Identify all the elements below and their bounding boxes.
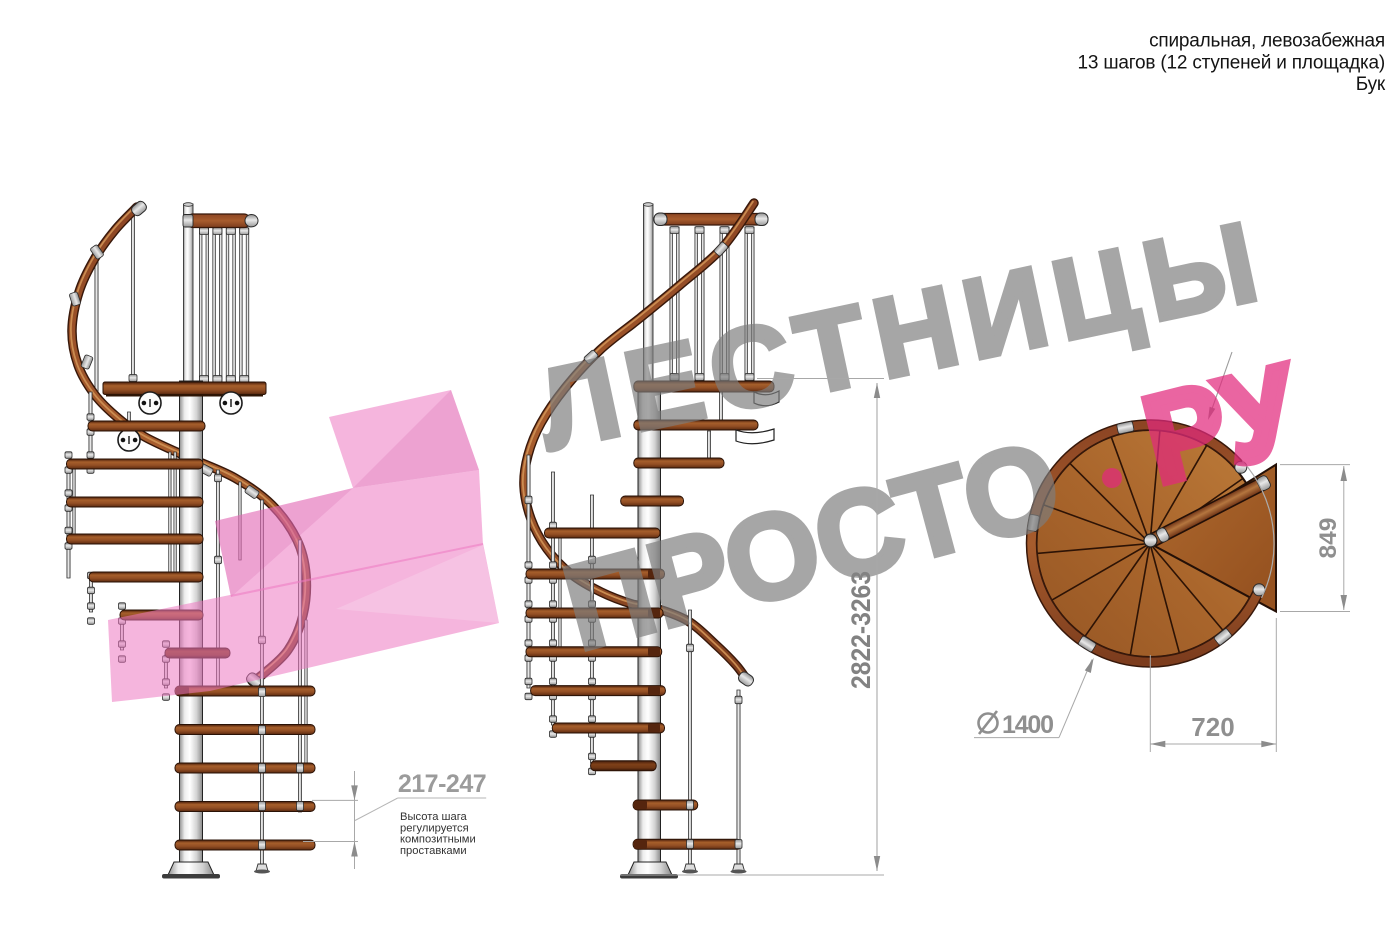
svg-text:849: 849: [1315, 518, 1342, 559]
svg-text:Высота шагарегулируетсякомпози: Высота шагарегулируетсякомпозитнымипрост…: [400, 811, 476, 857]
svg-text:720: 720: [1191, 712, 1234, 742]
svg-text:2822-3263: 2822-3263: [846, 571, 876, 689]
svg-text:1400: 1400: [1002, 711, 1053, 739]
svg-text:217-247: 217-247: [398, 770, 486, 798]
